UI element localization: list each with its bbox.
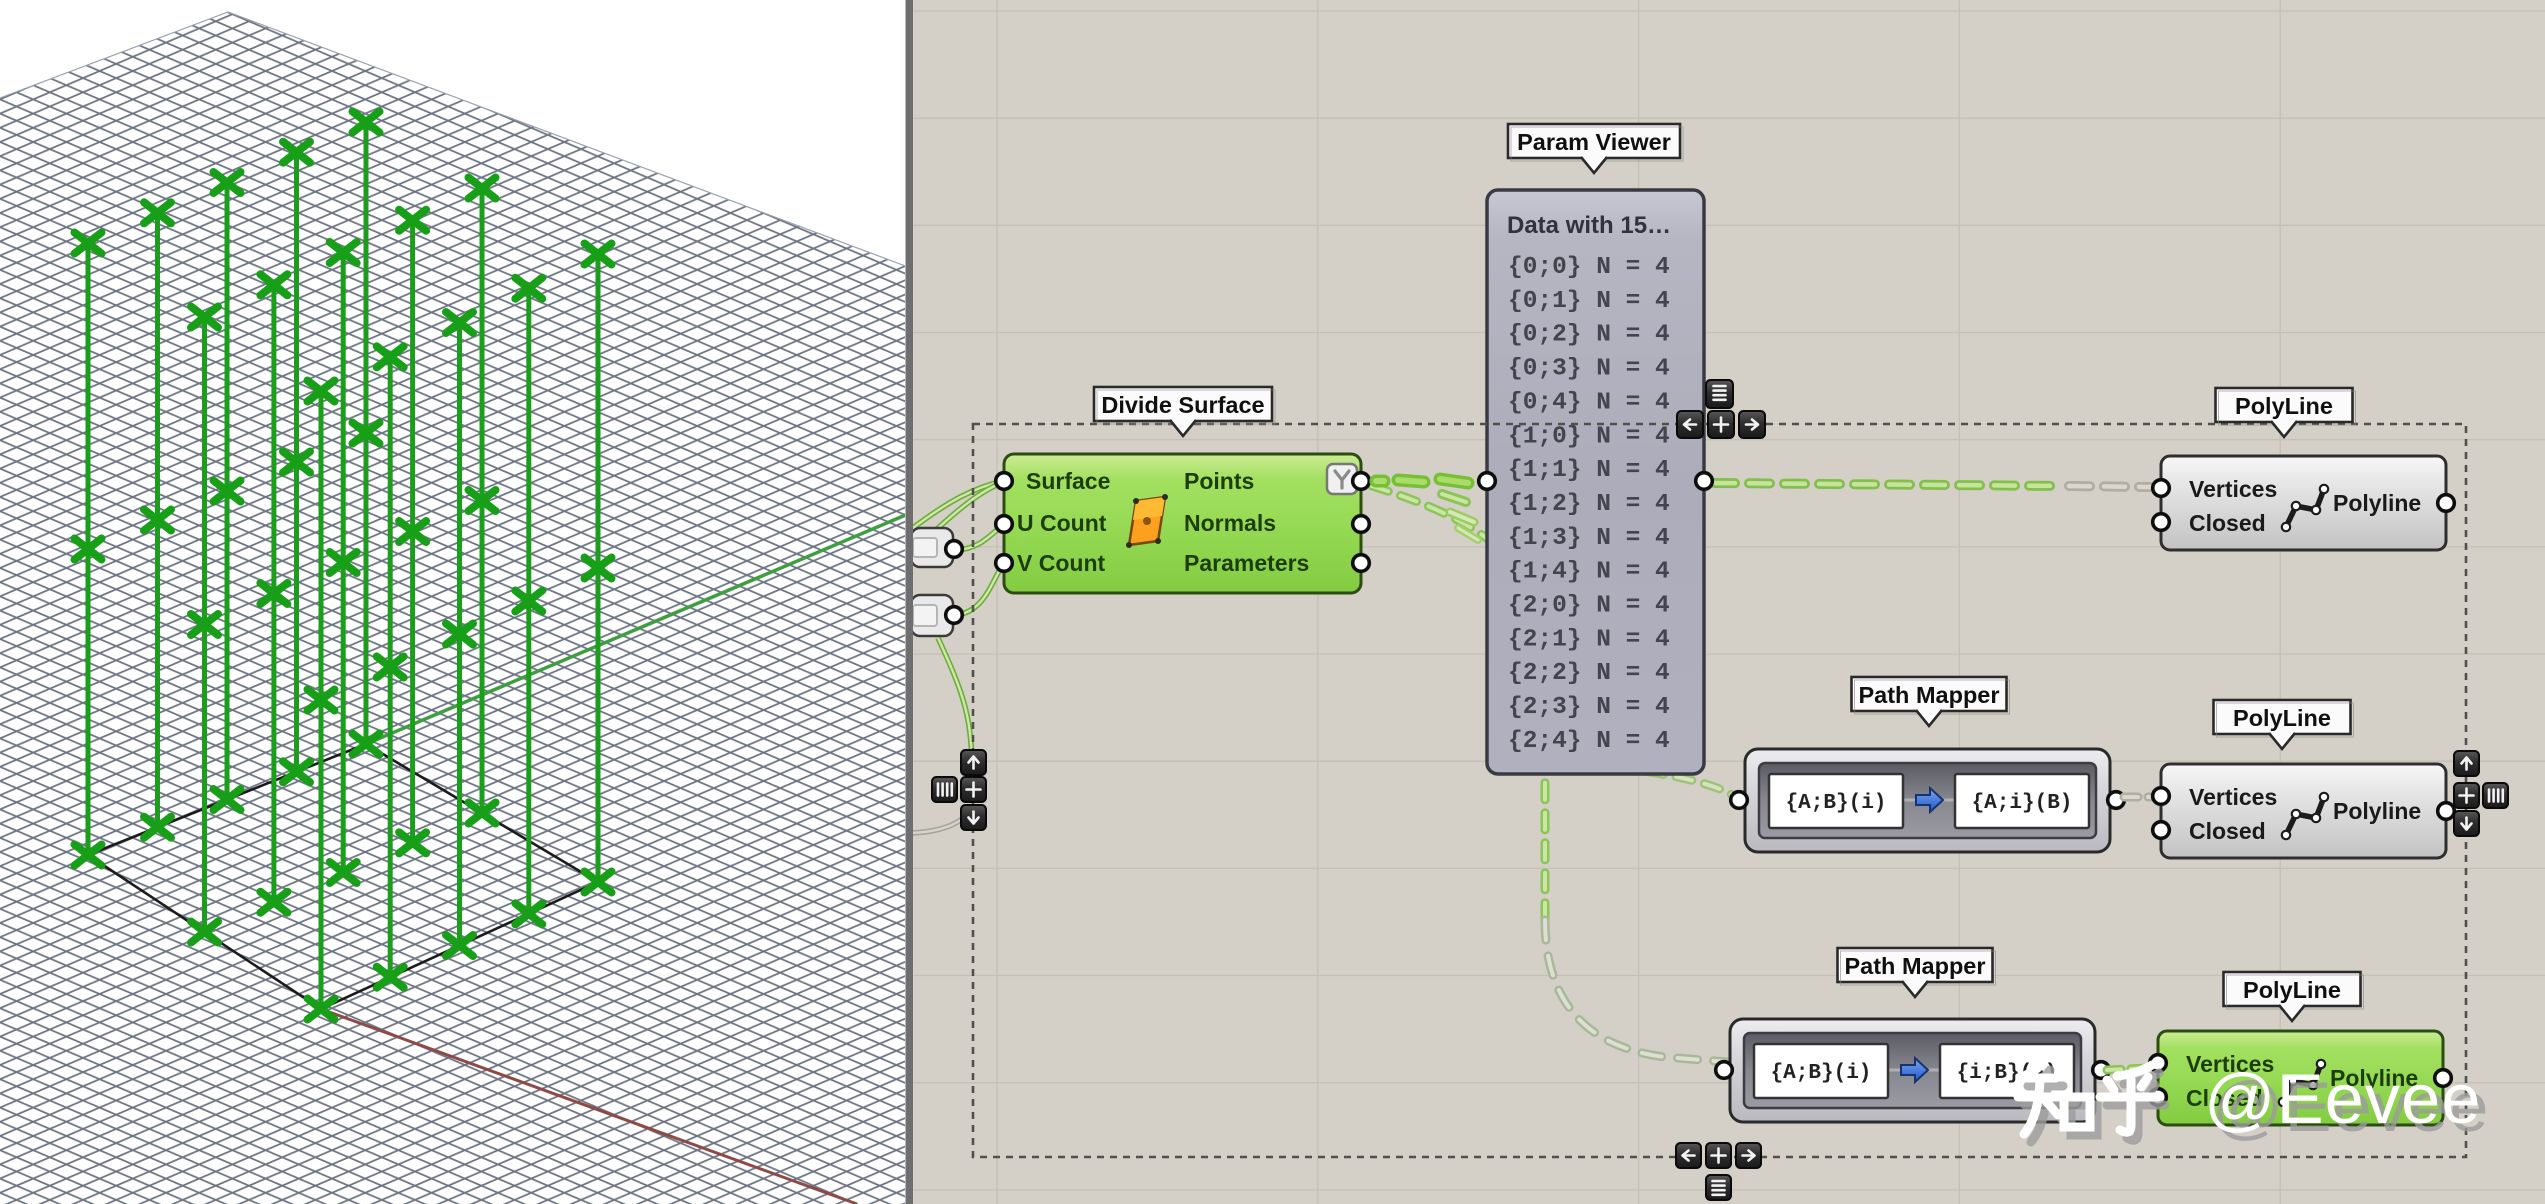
svg-text:Normals: Normals [1184,510,1276,536]
svg-text:V Count: V Count [1017,550,1105,576]
svg-text:Param Viewer: Param Viewer [1517,129,1671,155]
svg-text:Polyline: Polyline [2333,490,2421,516]
svg-text:@Eevee: @Eevee [2204,1059,2481,1138]
svg-text:{1;3} N = 4: {1;3} N = 4 [1508,525,1670,552]
svg-text:PolyLine: PolyLine [2243,977,2341,1003]
svg-text:{0;3} N = 4: {0;3} N = 4 [1508,356,1670,383]
svg-text:{2;0} N = 4: {2;0} N = 4 [1508,593,1670,620]
svg-text:{A;B}(i): {A;B}(i) [1771,1062,1872,1085]
svg-text:{0;4} N = 4: {0;4} N = 4 [1508,389,1670,416]
svg-text:{2;1} N = 4: {2;1} N = 4 [1508,626,1670,653]
svg-text:{1;4} N = 4: {1;4} N = 4 [1508,559,1670,586]
svg-text:{1;2} N = 4: {1;2} N = 4 [1508,491,1670,518]
svg-text:Closed: Closed [2189,510,2266,536]
svg-text:{1;0} N = 4: {1;0} N = 4 [1508,423,1670,450]
svg-text:Vertices: Vertices [2189,784,2277,810]
svg-text:PolyLine: PolyLine [2233,705,2331,731]
svg-text:{2;4} N = 4: {2;4} N = 4 [1508,728,1670,755]
svg-text:Vertices: Vertices [2189,476,2277,502]
svg-text:{2;2} N = 4: {2;2} N = 4 [1508,660,1670,687]
svg-text:Surface: Surface [1026,468,1110,494]
svg-text:U Count: U Count [1017,510,1107,536]
svg-text:Divide Surface: Divide Surface [1101,392,1264,418]
svg-text:Polyline: Polyline [2333,798,2421,824]
svg-text:{1;1} N = 4: {1;1} N = 4 [1508,457,1670,484]
svg-text:{A;i}(B): {A;i}(B) [1972,792,2073,815]
svg-text:Parameters: Parameters [1184,550,1309,576]
svg-text:{2;3} N = 4: {2;3} N = 4 [1508,694,1670,721]
svg-text:Path Mapper: Path Mapper [1844,953,1985,979]
svg-text:Closed: Closed [2189,818,2266,844]
svg-text:{0;0} N = 4: {0;0} N = 4 [1508,254,1670,281]
svg-text:Data with 15…: Data with 15… [1507,212,1671,239]
svg-text:{0;2} N = 4: {0;2} N = 4 [1508,322,1670,349]
svg-text:{0;1} N = 4: {0;1} N = 4 [1508,288,1670,315]
svg-text:Path Mapper: Path Mapper [1858,682,1999,708]
svg-text:Points: Points [1184,468,1254,494]
svg-text:PolyLine: PolyLine [2235,393,2333,419]
svg-text:{A;B}(i): {A;B}(i) [1786,792,1887,815]
